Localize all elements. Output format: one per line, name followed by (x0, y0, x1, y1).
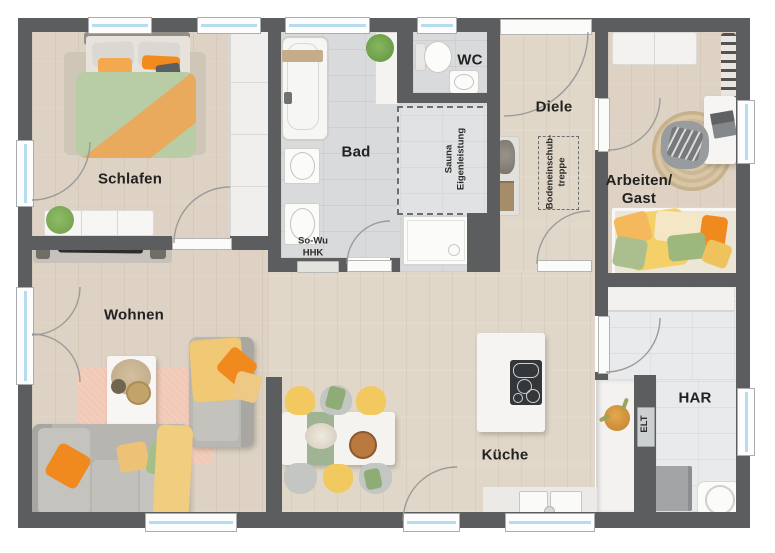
label-kueche: Küche (482, 447, 529, 464)
wall-shower-east (467, 213, 500, 272)
label-so-wu-hhk: So-Wu HHK (298, 236, 328, 261)
label-sauna-line2: Eigenleistung (456, 128, 468, 190)
bookshelf (721, 33, 736, 99)
floor-plan: Schlafen Bad WC Diele Arbeiten/ Gast Woh… (0, 0, 775, 553)
tray-small (111, 379, 126, 394)
label-diele: Diele (536, 99, 573, 116)
bathtub-caddy (282, 50, 323, 62)
floor-living-kitchen (268, 272, 595, 512)
dining-table (282, 412, 395, 465)
bad-radiator (297, 261, 339, 273)
wall-har-west-a (595, 287, 608, 316)
window-bad (285, 17, 370, 34)
plant-bad (366, 34, 394, 62)
tray-large (126, 381, 151, 405)
door-leaf-schlafen (172, 238, 232, 250)
door-leaf-har (598, 316, 610, 374)
label-wohnen: Wohnen (104, 307, 164, 324)
cooktop (510, 360, 542, 405)
dining-chair-1 (285, 386, 315, 415)
dining-chair-4 (284, 463, 317, 494)
wall-exterior-bottom (18, 512, 750, 528)
bedroom-wardrobe (228, 32, 271, 236)
label-arbeiten-line1: Arbeiten/ (606, 172, 673, 190)
arbeiten-cabinet (612, 32, 697, 65)
label-elt: ELT (639, 415, 651, 432)
entrance-door (500, 19, 592, 35)
window-har-right (737, 388, 755, 456)
table-flowers (305, 423, 337, 449)
wall-schlafen-south-b (230, 236, 268, 250)
har-cabinet (608, 288, 734, 312)
wall-wc-south (400, 93, 487, 103)
label-wc: WC (457, 52, 482, 69)
wall-schlafen-south-a (32, 236, 172, 250)
window-schlafen-left (16, 140, 34, 207)
label-arbeiten-line2: Gast (606, 190, 673, 208)
door-leaf-diele-living (537, 260, 592, 272)
label-sowu-line1: So-Wu (298, 236, 328, 248)
kitchen-counter-right (596, 380, 635, 513)
wall-diele-west (487, 32, 500, 215)
label-har: HAR (678, 390, 711, 407)
plant-sideboard (46, 206, 74, 234)
wall-exterior-left (18, 18, 32, 528)
label-bad: Bad (342, 144, 371, 161)
wc-toilet (424, 41, 452, 73)
terrace-door (403, 513, 460, 532)
label-sauna: Sauna Eigenleistung (444, 128, 469, 190)
dining-chair-5 (323, 464, 353, 493)
label-treppe-line1: Bodeneinschub- (545, 135, 557, 209)
window-schlafen-top-2 (197, 17, 261, 34)
window-wohnen-bottom (145, 513, 237, 532)
door-leaf-arbeiten (598, 98, 610, 152)
wall-schlafen-east (268, 32, 281, 272)
shower-tray (402, 215, 470, 266)
window-arbeiten-right (737, 100, 755, 164)
laptop (710, 110, 737, 139)
bed-duvet (76, 72, 196, 158)
bad-washbasin-1 (284, 148, 320, 184)
wall-arbeiten-south (595, 273, 736, 287)
window-wc (417, 17, 457, 34)
duvet-orange-band (76, 72, 196, 158)
window-schlafen-top-1 (88, 17, 152, 34)
wall-wohnen-ess-stub (266, 377, 282, 512)
window-wohnen-left (16, 287, 34, 385)
bathtub-faucet (284, 92, 292, 104)
window-kueche-bottom (505, 513, 595, 532)
daybed-pillow-green-2 (612, 235, 649, 270)
label-treppe-line2: treppe (557, 135, 569, 209)
table-bowl (349, 431, 377, 459)
wall-diele-east-b (595, 150, 608, 273)
sofa-blanket (153, 424, 194, 518)
bathtub (281, 36, 329, 141)
wall-diele-east-a (595, 32, 608, 98)
door-leaf-bad (347, 260, 392, 272)
label-sauna-line1: Sauna (444, 128, 456, 190)
label-arbeiten-gast: Arbeiten/ Gast (606, 172, 673, 208)
label-sowu-line2: HHK (298, 248, 328, 260)
label-schlafen: Schlafen (98, 171, 162, 188)
dining-chair-3 (356, 386, 386, 415)
label-bodeneinschubtreppe: Bodeneinschub- treppe (545, 135, 570, 209)
office-chair-pillow (666, 126, 704, 162)
wc-washbasin (449, 70, 479, 94)
